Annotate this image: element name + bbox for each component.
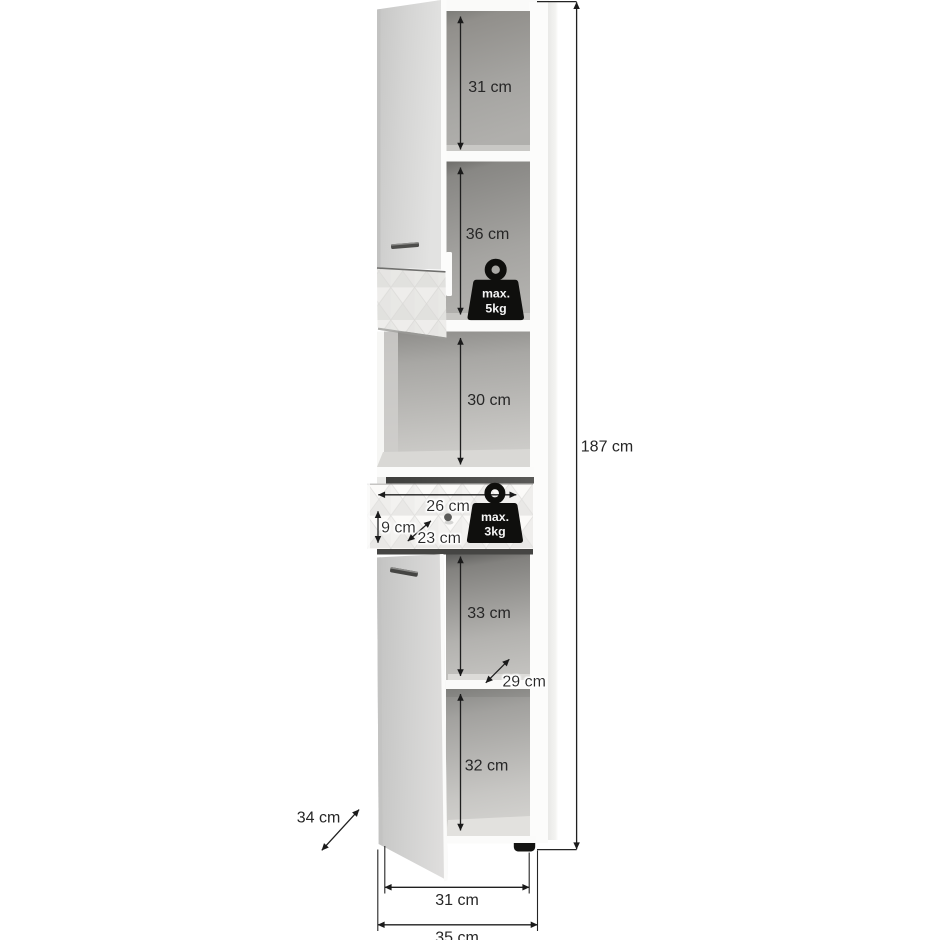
svg-text:max.: max. — [481, 510, 509, 524]
svg-text:35 cm: 35 cm — [435, 930, 479, 940]
svg-text:26 cm: 26 cm — [426, 498, 470, 515]
svg-text:31 cm: 31 cm — [468, 79, 512, 96]
svg-text:23 cm: 23 cm — [417, 530, 461, 547]
svg-text:36 cm: 36 cm — [466, 226, 510, 243]
svg-text:29 cm: 29 cm — [502, 674, 546, 691]
svg-text:33 cm: 33 cm — [467, 605, 511, 622]
svg-text:34 cm: 34 cm — [297, 810, 341, 827]
svg-text:max.: max. — [482, 287, 510, 301]
svg-text:187 cm: 187 cm — [581, 439, 633, 456]
svg-text:31 cm: 31 cm — [435, 892, 479, 909]
svg-text:32 cm: 32 cm — [465, 758, 509, 775]
svg-text:3kg: 3kg — [484, 524, 505, 538]
svg-text:9 cm: 9 cm — [381, 520, 416, 537]
svg-text:30 cm: 30 cm — [467, 392, 511, 409]
svg-text:5kg: 5kg — [485, 302, 506, 316]
